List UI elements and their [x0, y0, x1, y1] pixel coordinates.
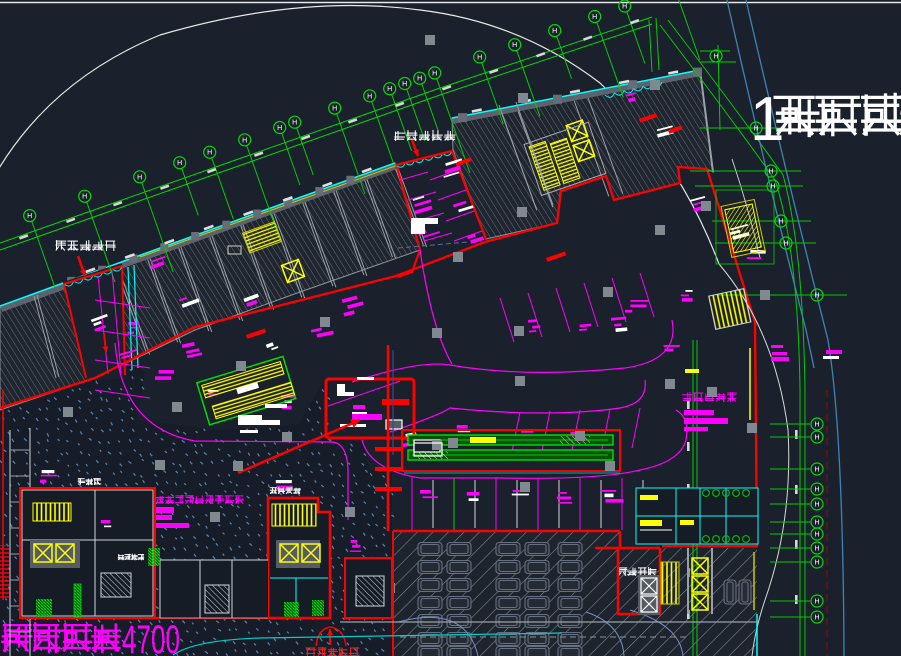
svg-text:H: H [477, 55, 482, 62]
svg-text:H: H [814, 422, 819, 429]
svg-text:H: H [814, 615, 819, 622]
svg-text:H: H [27, 213, 32, 220]
svg-text:H: H [387, 86, 392, 93]
svg-text:H: H [622, 4, 627, 11]
svg-text:H: H [814, 467, 819, 474]
svg-text:H: H [783, 241, 788, 248]
svg-text:H: H [592, 14, 597, 21]
svg-text:H: H [242, 137, 247, 144]
svg-text:H: H [402, 81, 407, 88]
svg-text:H: H [778, 219, 783, 226]
svg-text:H: H [770, 184, 775, 191]
svg-text:H: H [814, 293, 819, 300]
svg-text:H: H [814, 502, 819, 509]
svg-text:H: H [814, 546, 819, 553]
svg-text:H: H [367, 93, 372, 100]
svg-text:H: H [277, 125, 282, 132]
svg-text:H: H [552, 28, 557, 35]
svg-text:H: H [432, 70, 437, 77]
svg-text:H: H [417, 76, 422, 83]
svg-text:H: H [207, 150, 212, 157]
svg-text:H: H [814, 532, 819, 539]
svg-text:1: 1 [750, 85, 784, 154]
svg-text:H: H [82, 194, 87, 201]
svg-text:H: H [814, 520, 819, 527]
svg-text:H: H [137, 174, 142, 181]
svg-text:H: H [814, 487, 819, 494]
svg-text:H: H [814, 599, 819, 606]
svg-text:H: H [512, 42, 517, 49]
svg-text:H: H [713, 54, 718, 61]
svg-text:4700: 4700 [122, 618, 180, 656]
svg-text:H: H [768, 169, 773, 176]
svg-text:H: H [292, 120, 297, 127]
svg-text:H: H [332, 106, 337, 113]
svg-text:H: H [814, 560, 819, 567]
svg-text:H: H [814, 435, 819, 442]
svg-text:H: H [177, 160, 182, 167]
